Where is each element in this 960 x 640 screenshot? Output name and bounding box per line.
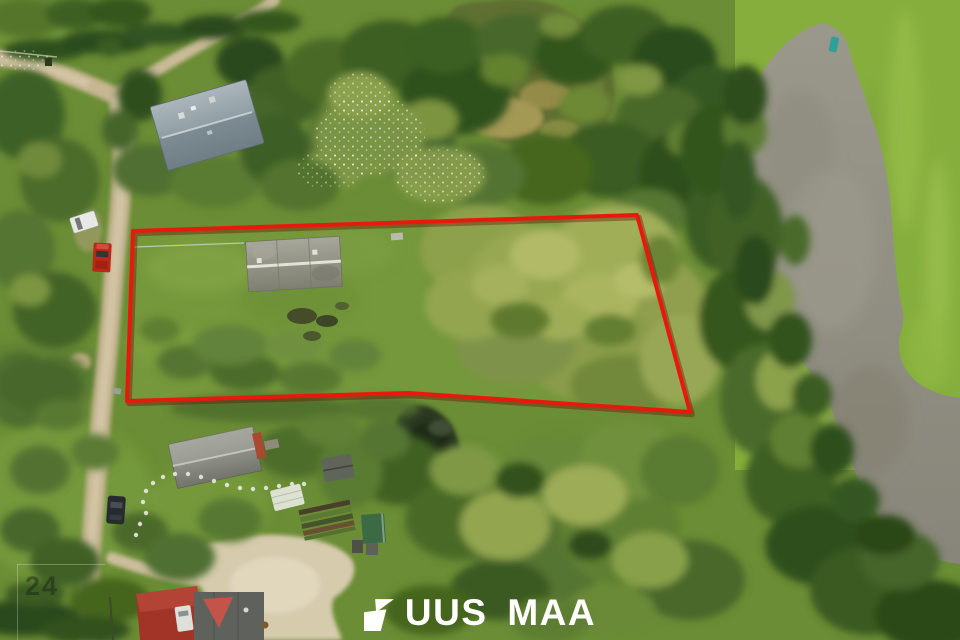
bin [45, 58, 52, 66]
brand-logo-text: UUS MAA [405, 594, 596, 631]
aerial-photo-scene [0, 0, 960, 640]
watermark-frame-line [17, 564, 105, 565]
uus-maa-flag-logo-icon [364, 599, 394, 631]
aerial-listing-photo: 24 UUS MAA [0, 0, 960, 640]
small-shed [366, 543, 378, 555]
black-car [106, 495, 126, 524]
small-shed [352, 540, 363, 553]
frame-number-watermark: 24 [25, 571, 59, 602]
garden-shed [321, 454, 355, 483]
brand-logo: UUS MAA [364, 594, 596, 631]
house-in-plot [246, 236, 343, 292]
red-pickup [92, 243, 111, 273]
garden-bench [391, 232, 404, 240]
gray-roof-building [194, 592, 264, 640]
watermark-frame-line [17, 564, 18, 640]
green-shed [361, 513, 386, 544]
barrel [262, 622, 269, 629]
